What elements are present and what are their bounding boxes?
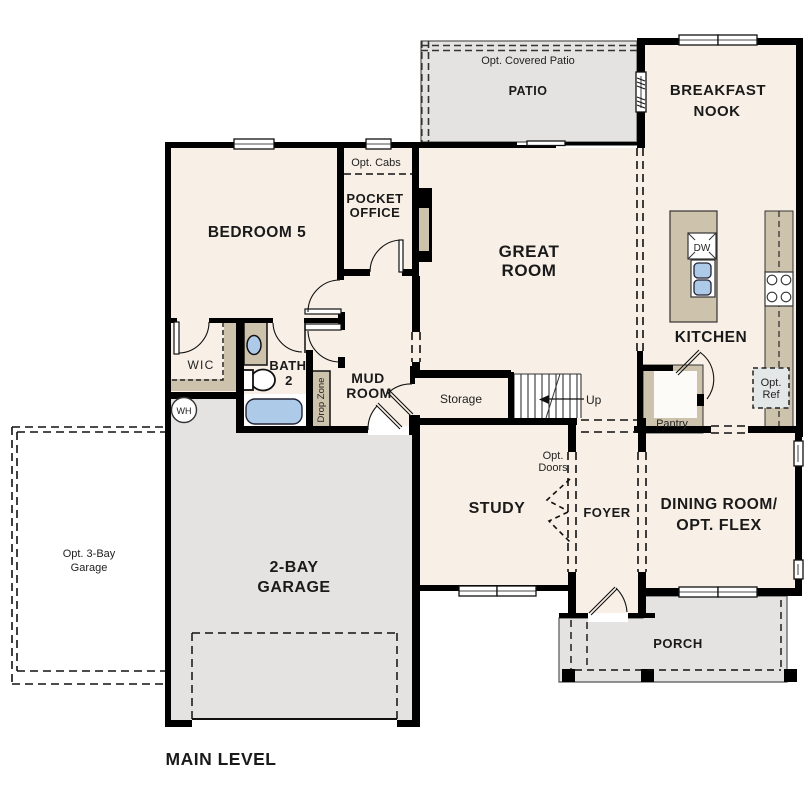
svg-text:Pantry: Pantry [656, 418, 688, 430]
svg-text:Opt. 3-Bay: Opt. 3-Bay [63, 548, 116, 560]
svg-text:Opt.: Opt. [543, 450, 564, 462]
svg-text:2: 2 [285, 373, 293, 388]
svg-text:BREAKFAST: BREAKFAST [670, 82, 766, 99]
svg-text:DINING ROOM/: DINING ROOM/ [660, 496, 777, 513]
svg-text:Garage: Garage [71, 562, 108, 574]
svg-text:MAIN LEVEL: MAIN LEVEL [166, 749, 277, 769]
svg-text:GREAT: GREAT [499, 242, 560, 261]
svg-text:OFFICE: OFFICE [350, 205, 401, 220]
svg-text:KITCHEN: KITCHEN [675, 329, 747, 346]
svg-text:FOYER: FOYER [583, 505, 630, 520]
svg-text:WH: WH [177, 406, 192, 416]
svg-text:Up: Up [586, 393, 602, 407]
svg-text:NOOK: NOOK [694, 103, 741, 120]
svg-text:BEDROOM 5: BEDROOM 5 [208, 224, 306, 241]
svg-text:DW: DW [694, 243, 711, 254]
svg-text:Opt. Covered Patio: Opt. Covered Patio [481, 55, 575, 67]
svg-text:PATIO: PATIO [509, 84, 548, 98]
svg-text:Opt.: Opt. [761, 377, 782, 389]
svg-text:OPT. FLEX: OPT. FLEX [676, 517, 761, 534]
svg-text:ROOM: ROOM [502, 261, 557, 280]
svg-text:Storage: Storage [440, 392, 482, 406]
svg-text:WIC: WIC [188, 358, 215, 372]
svg-text:POCKET: POCKET [346, 191, 403, 206]
svg-text:BATH: BATH [269, 358, 306, 373]
svg-text:Ref: Ref [762, 389, 780, 401]
svg-text:PORCH: PORCH [653, 636, 702, 651]
svg-text:GARAGE: GARAGE [257, 579, 330, 596]
svg-text:Doors: Doors [538, 462, 568, 474]
svg-text:STUDY: STUDY [469, 500, 526, 517]
svg-text:2-BAY: 2-BAY [269, 559, 318, 576]
svg-text:Drop Zone: Drop Zone [316, 378, 327, 423]
svg-text:MUD: MUD [351, 370, 384, 386]
svg-text:Opt. Cabs: Opt. Cabs [351, 157, 401, 169]
svg-text:ROOM: ROOM [346, 385, 392, 401]
